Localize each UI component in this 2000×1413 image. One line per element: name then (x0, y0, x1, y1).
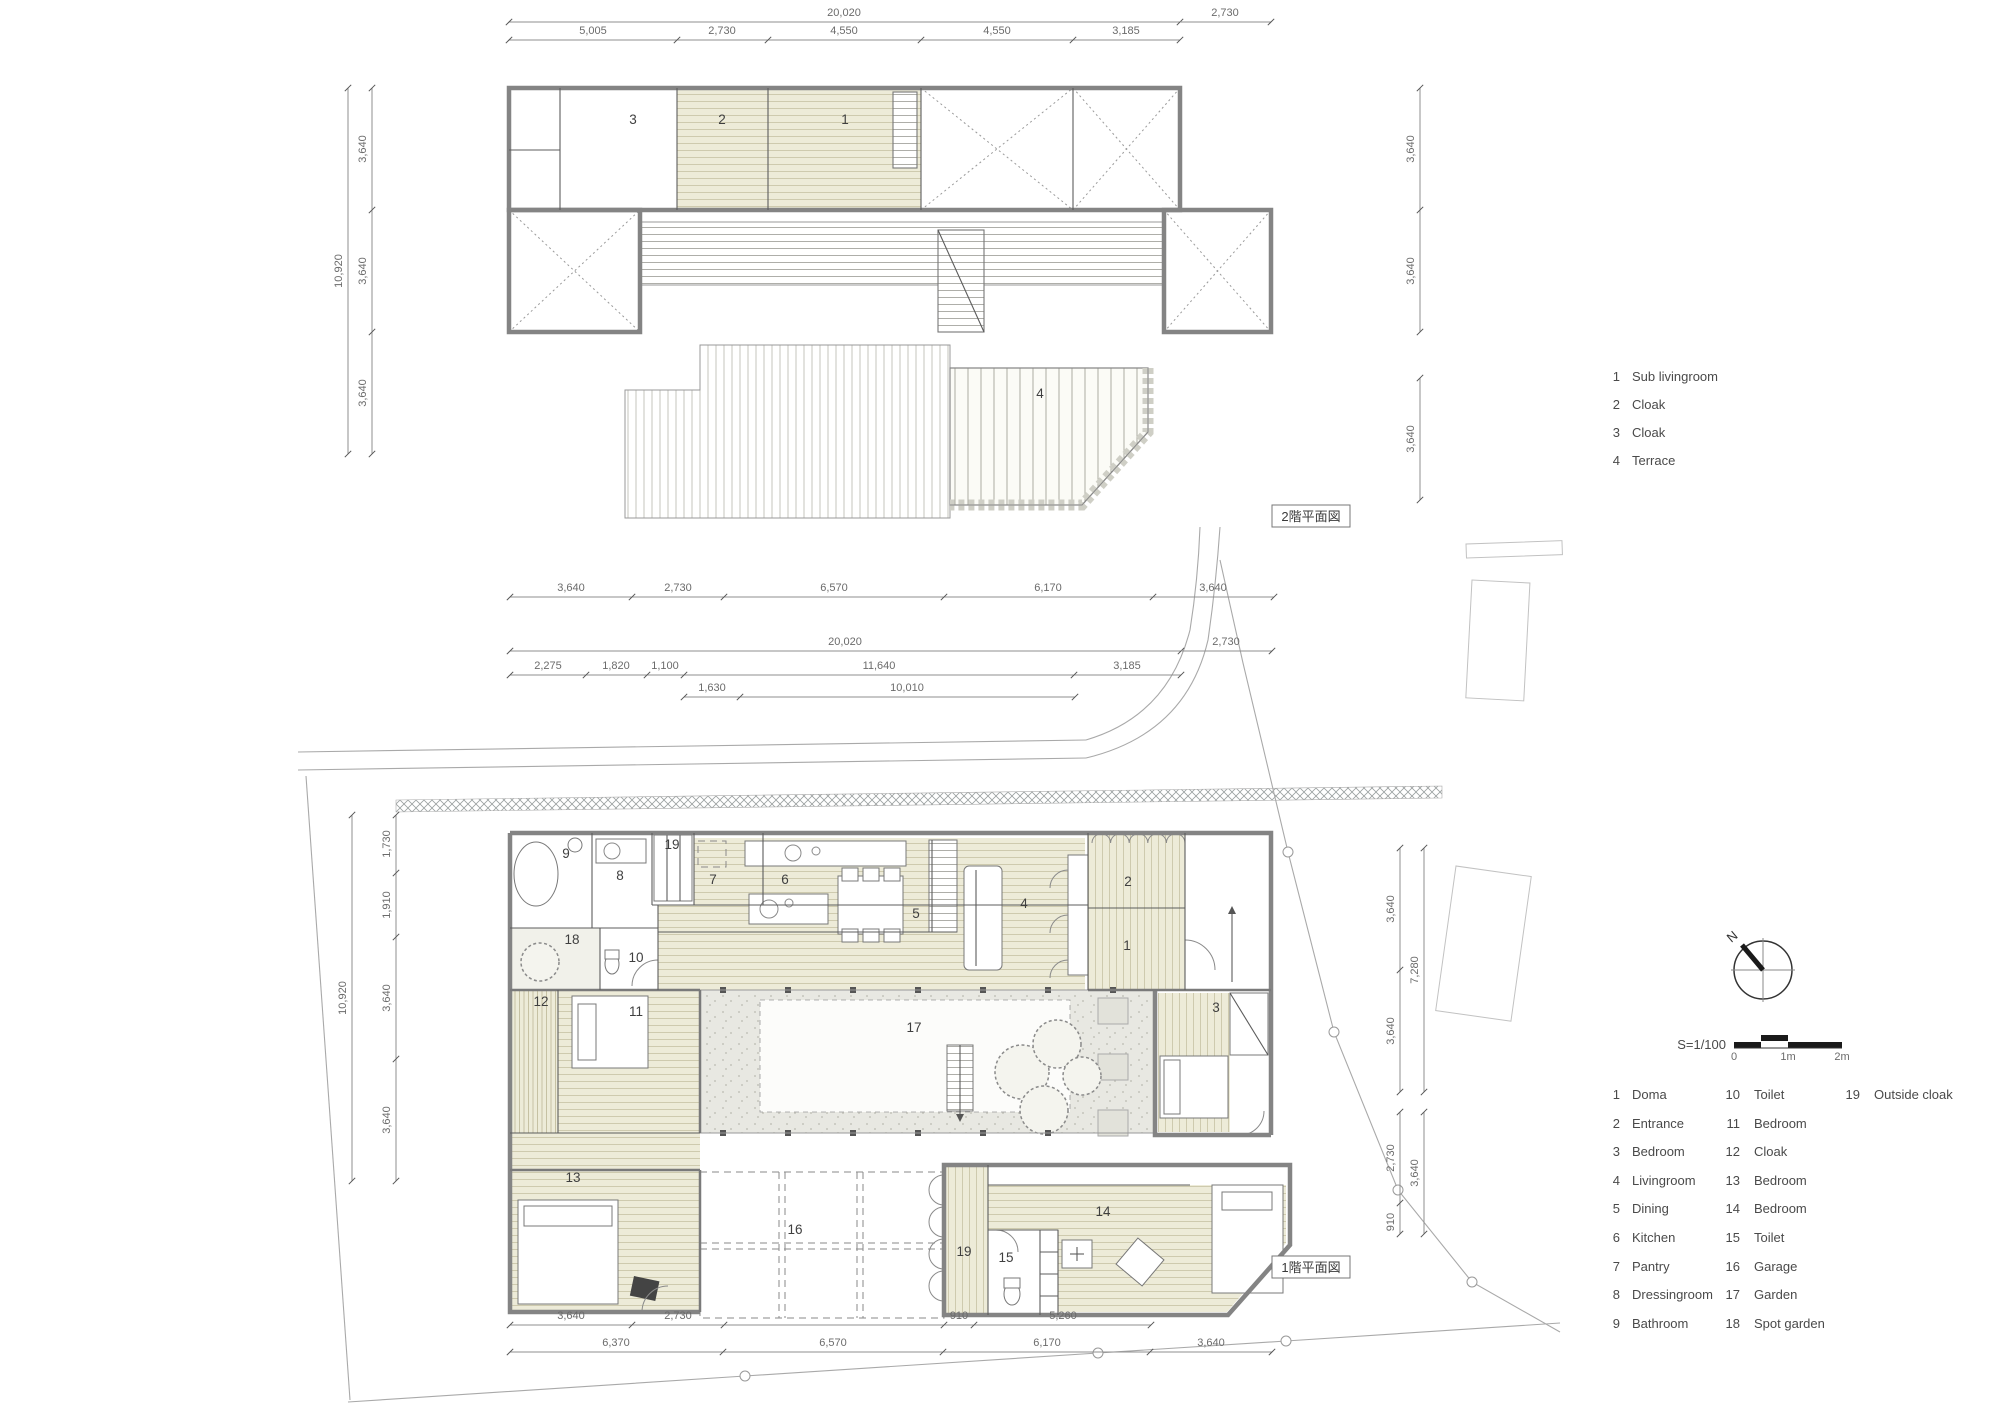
legend-number: 1 (1613, 369, 1620, 384)
dim-label: 1,630 (698, 682, 726, 694)
dim-label: 3,640 (1199, 582, 1227, 594)
legend-number: 5 (1613, 1201, 1620, 1216)
dim-label: 3,640 (1385, 895, 1397, 923)
bathtub (514, 842, 558, 906)
dim-label: 3,640 (1405, 425, 1417, 453)
legend-number: 9 (1613, 1316, 1620, 1331)
scale-label: S=1/100 (1677, 1037, 1726, 1052)
legend-name: Terrace (1632, 453, 1675, 468)
dim-label: 2,730 (1212, 636, 1240, 648)
room-number: 16 (787, 1222, 802, 1237)
legend-name: Toilet (1754, 1230, 1785, 1245)
legend-name: Garage (1754, 1259, 1797, 1274)
dim-label: 4,550 (983, 25, 1011, 37)
legend-number: 12 (1726, 1144, 1740, 1159)
dim-label: 3,640 (357, 135, 369, 163)
tree (1020, 1086, 1068, 1134)
legend-number: 3 (1613, 425, 1620, 440)
architectural-drawing-sheet: 3 2 1 4 20,020 2,730 5,005 2,730 4,550 4… (0, 0, 2000, 1413)
room-number: 9 (562, 846, 570, 861)
legend-number: 1 (1613, 1087, 1620, 1102)
room-number: 19 (956, 1244, 971, 1259)
room-number: 18 (564, 932, 579, 947)
north-needle (1742, 945, 1763, 970)
room-number: 4 (1036, 386, 1044, 401)
dim-label: 11,640 (863, 660, 896, 672)
legend-number: 10 (1726, 1087, 1740, 1102)
dim-label: 20,020 (827, 7, 861, 19)
dim-label: 1,100 (651, 660, 679, 672)
legend-number: 13 (1726, 1173, 1740, 1188)
room-number: 7 (709, 872, 717, 887)
room-number: 5 (912, 906, 920, 921)
room-number: 13 (565, 1170, 580, 1185)
legend-number: 4 (1613, 453, 1620, 468)
room-number: 14 (1095, 1204, 1111, 1219)
dim-label: 4,550 (830, 25, 858, 37)
dim-label: 3,185 (1112, 25, 1140, 37)
dim-label: 20,020 (828, 636, 862, 648)
legend-name: Pantry (1632, 1259, 1670, 1274)
legend-name: Livingroom (1632, 1173, 1696, 1188)
plan-title-1f: 1階平面図 (1272, 1256, 1350, 1278)
svg-text:1階平面図: 1階平面図 (1281, 1260, 1340, 1275)
dim-label: 2,275 (534, 660, 562, 672)
dim-label: 2,730 (1385, 1144, 1397, 1172)
legend-name: Bedroom (1754, 1201, 1807, 1216)
legend-name: Dressingroom (1632, 1287, 1713, 1302)
dim-label: 910 (950, 1310, 968, 1322)
dim-label: 5,260 (1049, 1310, 1077, 1322)
shower (568, 838, 582, 852)
dim-label: 3,640 (557, 1310, 585, 1322)
shelf-15 (1040, 1230, 1058, 1315)
legend-name: Toilet (1754, 1087, 1785, 1102)
room-number: 8 (616, 868, 624, 883)
dim-label: 3,185 (1113, 660, 1141, 672)
legend-number: 6 (1613, 1230, 1620, 1245)
legend-number: 17 (1726, 1287, 1740, 1302)
dim-label: 10,920 (333, 254, 345, 288)
dim-label: 3,640 (1409, 1159, 1421, 1187)
legend-number: 16 (1726, 1259, 1740, 1274)
legend-name: Bedroom (1754, 1116, 1807, 1131)
room-number: 17 (906, 1020, 921, 1035)
dim-label: 2,730 (664, 1310, 692, 1322)
north-label: N (1724, 928, 1741, 946)
room-number: 4 (1020, 896, 1028, 911)
legend-name: Outside cloak (1874, 1087, 1953, 1102)
room-number: 15 (998, 1250, 1013, 1265)
legend-name: Cloak (1632, 397, 1666, 412)
dim-label: 7,280 (1409, 956, 1421, 984)
dim-label: 3,640 (357, 257, 369, 285)
dim-label: 2,730 (664, 582, 692, 594)
legend-name: Dining (1632, 1201, 1669, 1216)
legend-name: Bedroom (1632, 1144, 1685, 1159)
kitchen-island (749, 894, 828, 924)
legend-1f: 1Doma 2Entrance 3Bedroom 4Livingroom 5Di… (1613, 1087, 1953, 1331)
legend-2f: 1 Sub livingroom 2 Cloak 3 Cloak 4 Terra… (1613, 369, 1718, 468)
dim-label: 6,370 (602, 1337, 630, 1349)
dim-label: 6,570 (819, 1337, 847, 1349)
scale-tick: 1m (1780, 1051, 1795, 1063)
1f-doma-floor (1088, 906, 1185, 990)
room-number: 11 (629, 1004, 643, 1019)
sofa (964, 866, 1002, 970)
plan-title-2f: 2階平面図 (1272, 505, 1350, 527)
tree (1063, 1057, 1101, 1095)
legend-number: 18 (1726, 1316, 1740, 1331)
dim-label: 6,570 (820, 582, 848, 594)
room-number: 1 (841, 112, 849, 127)
legend-name: Entrance (1632, 1116, 1684, 1131)
dim-label: 910 (1385, 1213, 1397, 1231)
1f-entrance-floor (1088, 833, 1185, 906)
room-number: 6 (781, 872, 789, 887)
legend-number: 2 (1613, 397, 1620, 412)
legend-name: Kitchen (1632, 1230, 1675, 1245)
scale-tick: 2m (1834, 1051, 1849, 1063)
room-number: 3 (629, 112, 637, 127)
legend-number: 4 (1613, 1173, 1620, 1188)
1f-cloak12-floor (510, 990, 558, 1133)
dim-label: 10,010 (890, 682, 924, 694)
cabinet (1068, 855, 1088, 975)
dim-label: 1,910 (381, 891, 393, 919)
tree (521, 943, 559, 981)
1f-outside-cloak-floor (944, 1165, 988, 1315)
2f-stairwell (893, 92, 917, 168)
legend-name: Bedroom (1754, 1173, 1807, 1188)
dim-label: 1,730 (381, 830, 393, 858)
dim-label: 2,730 (1211, 7, 1239, 19)
1f-garage (700, 1172, 944, 1318)
2f-cloak-2-floor (677, 88, 768, 210)
dim-label: 5,005 (579, 25, 607, 37)
site-fence-hatch (396, 786, 1442, 812)
dim-label: 1,820 (602, 660, 630, 672)
legend-name: Garden (1754, 1287, 1797, 1302)
room-number: 12 (533, 994, 548, 1009)
first-floor-plan: 9 8 19 7 6 5 4 2 1 18 10 12 11 17 3 13 1… (510, 833, 1290, 1318)
room-number: 10 (628, 950, 643, 965)
dim-label: 3,640 (381, 984, 393, 1012)
room-number: 3 (1212, 1000, 1220, 1015)
scale-tick: 0 (1731, 1051, 1737, 1063)
dim-label: 3,640 (557, 582, 585, 594)
dim-label: 3,640 (1405, 257, 1417, 285)
legend-name: Cloak (1632, 425, 1666, 440)
dim-label: 3,640 (1197, 1337, 1225, 1349)
legend-name: Cloak (1754, 1144, 1788, 1159)
kitchen-counter (745, 841, 906, 866)
legend-name: Bathroom (1632, 1316, 1688, 1331)
floor-plan-svg: 3 2 1 4 20,020 2,730 5,005 2,730 4,550 4… (0, 0, 2000, 1413)
second-floor-plan: 3 2 1 4 (509, 88, 1271, 518)
legend-number: 19 (1846, 1087, 1860, 1102)
room-number: 1 (1123, 938, 1131, 953)
legend-number: 11 (1727, 1116, 1741, 1131)
north-arrow: N (1724, 928, 1795, 1002)
legend-number: 15 (1726, 1230, 1740, 1245)
legend-number: 14 (1726, 1201, 1740, 1216)
legend-name: Spot garden (1754, 1316, 1825, 1331)
dim-label: 6,170 (1033, 1337, 1061, 1349)
dim-label: 10,920 (337, 981, 349, 1015)
room-number: 2 (1124, 874, 1132, 889)
legend-name: Sub livingroom (1632, 369, 1718, 384)
legend-number: 7 (1613, 1259, 1620, 1274)
legend-number: 3 (1613, 1144, 1620, 1159)
1f-stairs (929, 840, 957, 932)
2f-roof-deck (625, 345, 950, 518)
legend-number: 2 (1613, 1116, 1620, 1131)
room-number: 2 (718, 112, 726, 127)
legend-name: Doma (1632, 1087, 1667, 1102)
2f-lower-roof (640, 222, 1164, 285)
scale-bar: S=1/100 0 1m 2m (1677, 1035, 1849, 1063)
dim-label: 3,640 (357, 379, 369, 407)
dim-label: 3,640 (381, 1106, 393, 1134)
dim-label: 6,170 (1034, 582, 1062, 594)
dim-label: 3,640 (1405, 135, 1417, 163)
2f-terrace (950, 368, 1148, 505)
dim-label: 3,640 (1385, 1017, 1397, 1045)
room-number: 19 (664, 837, 679, 852)
legend-number: 8 (1613, 1287, 1620, 1302)
svg-text:2階平面図: 2階平面図 (1281, 509, 1340, 524)
dim-label: 2,730 (708, 25, 736, 37)
